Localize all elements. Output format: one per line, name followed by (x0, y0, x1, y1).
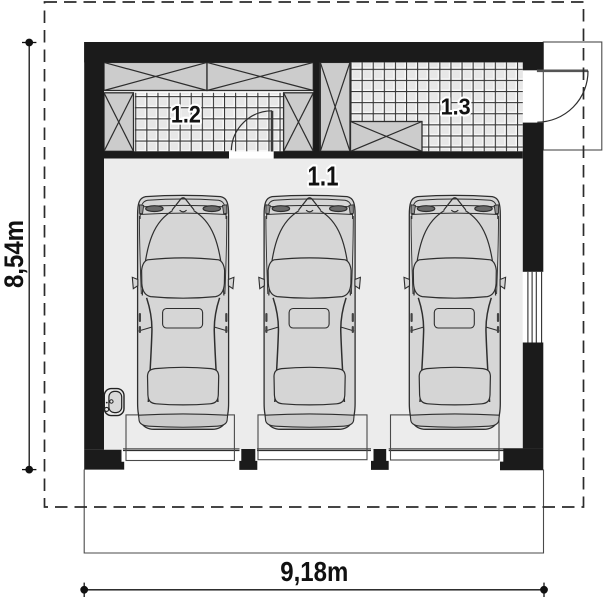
svg-text:8,54m: 8,54m (0, 220, 29, 288)
svg-text:1.3: 1.3 (441, 93, 471, 119)
svg-text:9,18m: 9,18m (280, 556, 348, 587)
svg-text:1.1: 1.1 (308, 160, 339, 191)
svg-text:1.2: 1.2 (171, 102, 201, 129)
